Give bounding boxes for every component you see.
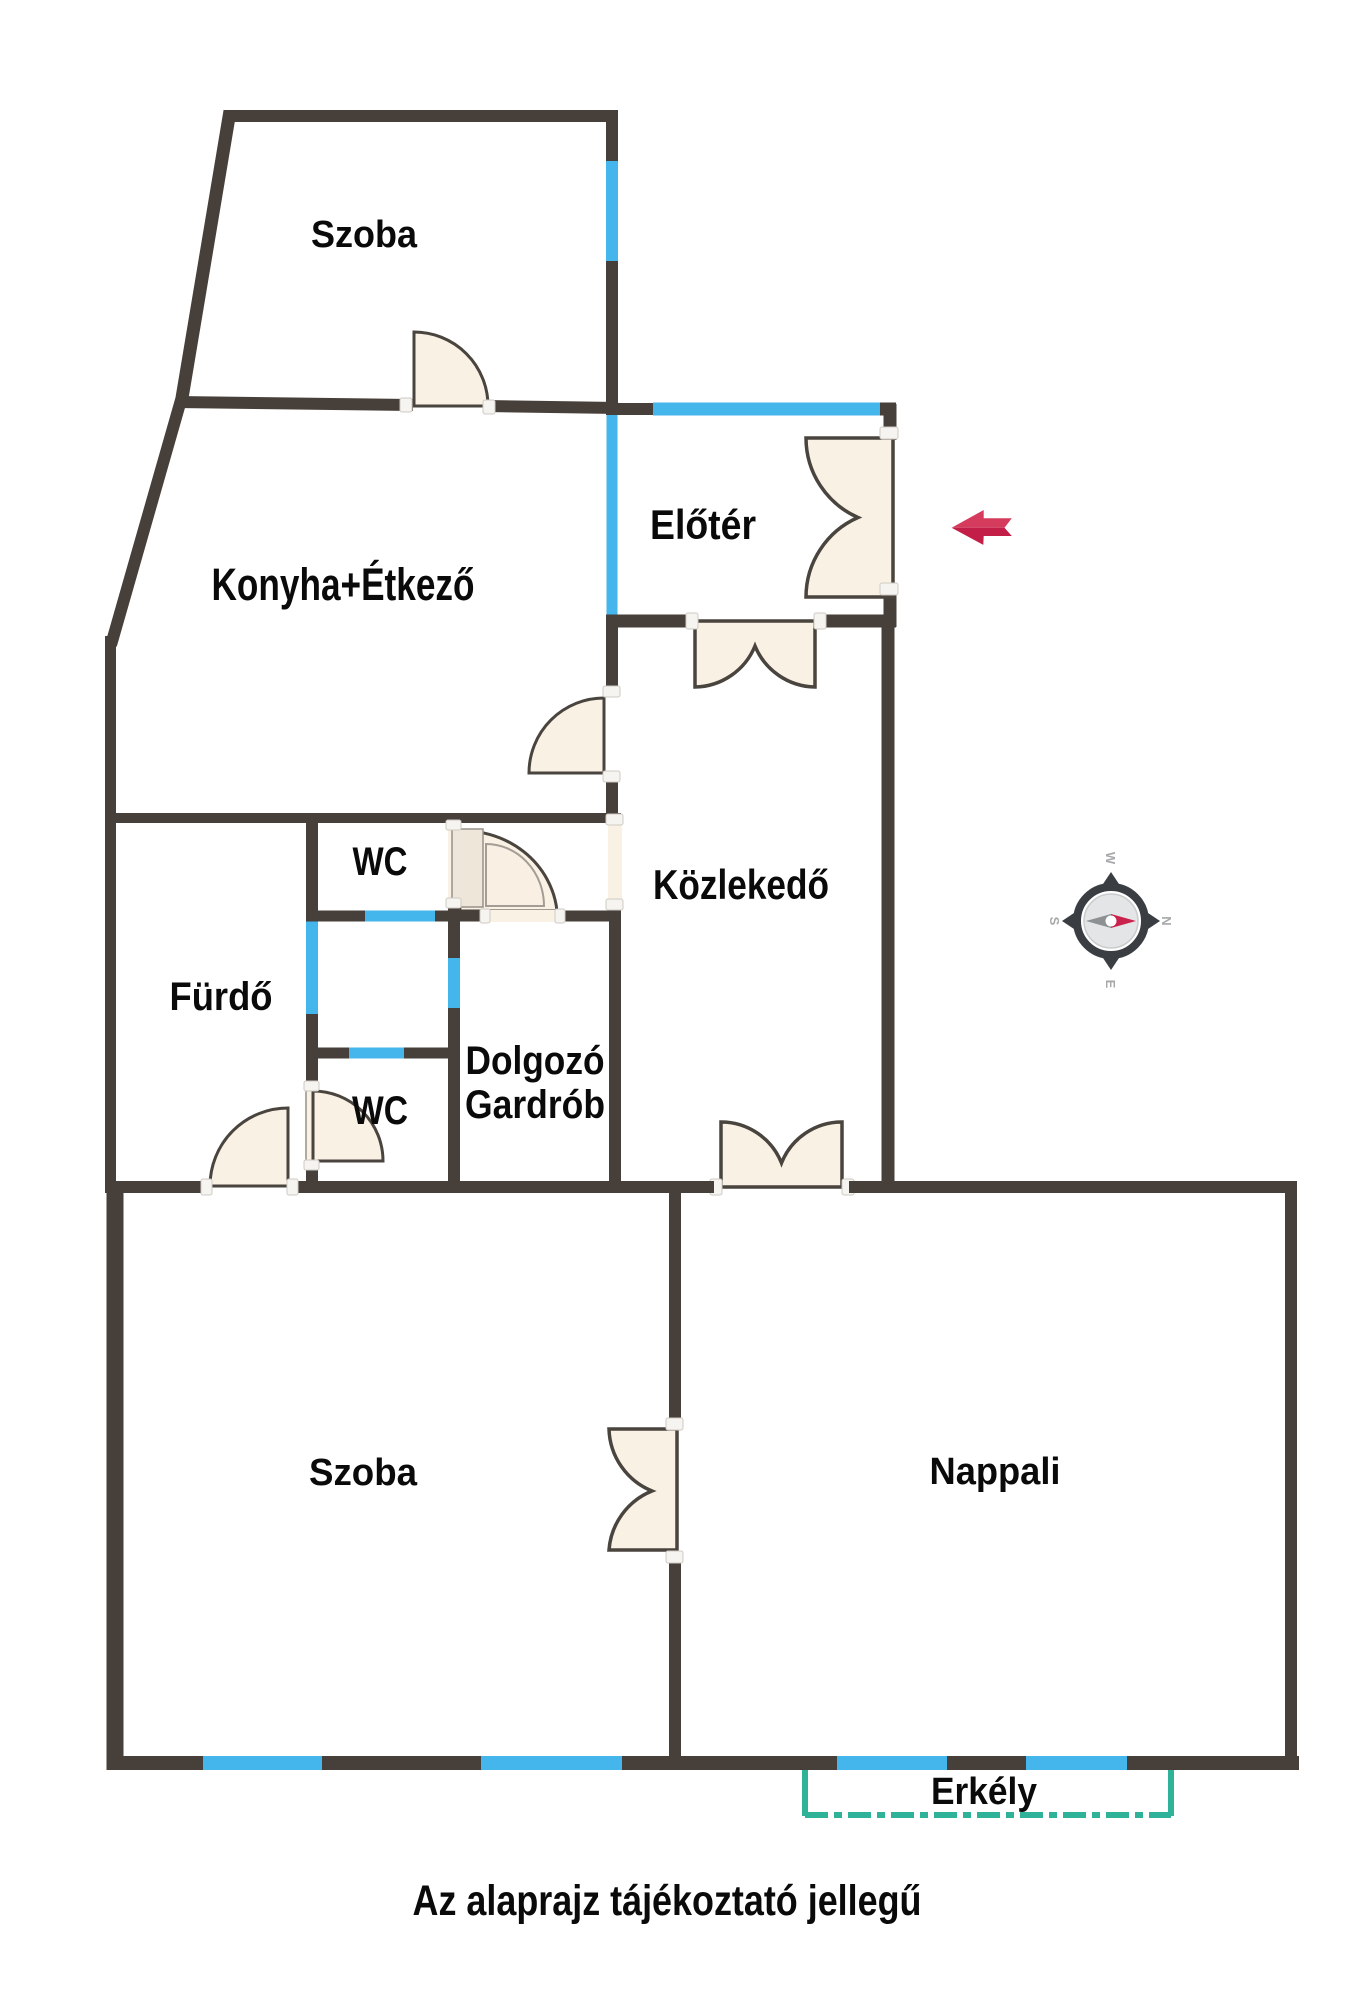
svg-text:Gardrób: Gardrób [465,1083,605,1127]
svg-text:Az alaprajz tájékoztató jelleg: Az alaprajz tájékoztató jellegű [413,1877,922,1925]
svg-text:WC: WC [352,1089,408,1133]
svg-text:S: S [1047,917,1062,926]
svg-text:Konyha+Étkező: Konyha+Étkező [212,559,475,610]
svg-text:W: W [1103,852,1118,865]
svg-text:Előtér: Előtér [650,501,756,548]
svg-text:WC: WC [353,840,408,884]
svg-text:Dolgozó: Dolgozó [466,1039,605,1083]
svg-text:Közlekedő: Közlekedő [653,861,829,908]
svg-text:Fürdő: Fürdő [170,975,273,1019]
svg-text:Szoba: Szoba [311,214,418,256]
svg-text:Nappali: Nappali [930,1451,1061,1493]
svg-text:Erkély: Erkély [931,1771,1037,1813]
svg-text:E: E [1103,980,1118,989]
svg-text:Szoba: Szoba [309,1452,418,1494]
svg-text:N: N [1159,916,1174,925]
